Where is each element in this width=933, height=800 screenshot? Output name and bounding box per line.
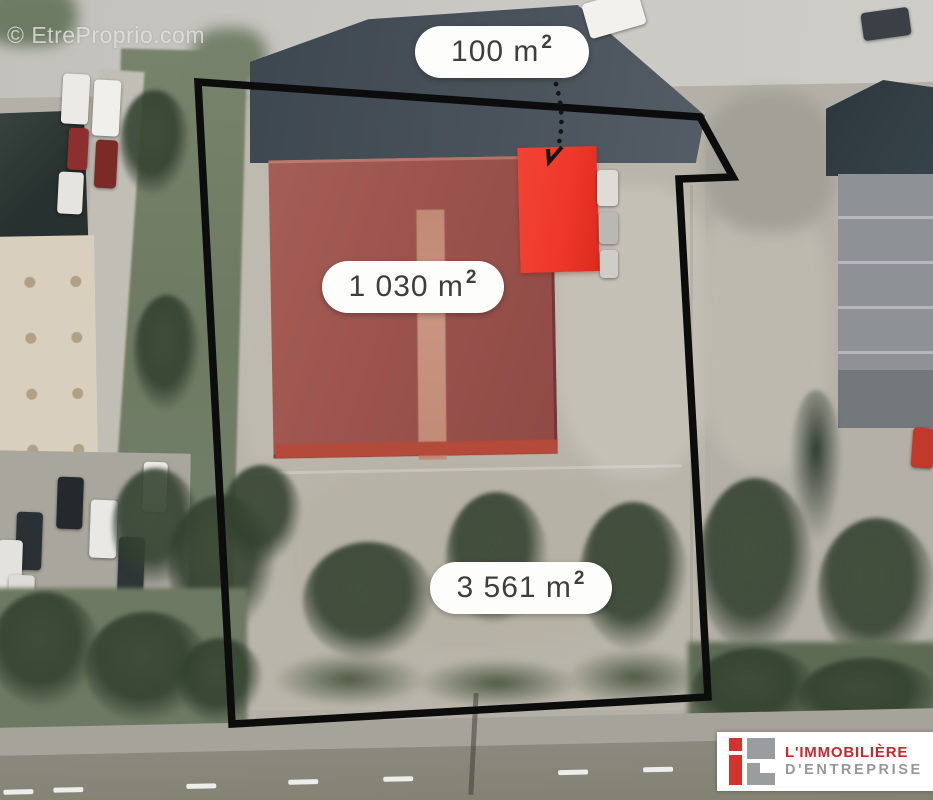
car xyxy=(67,128,89,171)
logo-i-dot xyxy=(729,738,742,751)
car xyxy=(600,250,618,278)
area-label-small-building: 100 m2 xyxy=(415,26,589,78)
aerial-photo: 100 m2 1 030 m2 3 561 m2 © EtreProprio.c… xyxy=(0,0,933,800)
area-value: 100 m xyxy=(451,35,539,69)
expansion-joint xyxy=(690,185,693,685)
squared-exponent: 2 xyxy=(574,568,586,590)
car xyxy=(61,73,91,124)
tree xyxy=(303,542,435,660)
roof-ridge-skylight xyxy=(416,210,446,460)
agency-name-line2: D'ENTREPRISE xyxy=(785,762,923,778)
watermark: © EtreProprio.com xyxy=(7,22,205,49)
car xyxy=(57,171,84,214)
car xyxy=(56,477,84,530)
agency-logo-text: L'IMMOBILIÈRE D'ENTREPRISE xyxy=(785,745,923,778)
lane-marking xyxy=(3,789,33,795)
car xyxy=(92,79,122,136)
right-building-dark-roof xyxy=(826,80,933,176)
logo-e-top-block xyxy=(747,738,775,759)
lane-marking xyxy=(558,769,588,775)
lane-marking xyxy=(383,776,413,782)
agency-name-line1: L'IMMOBILIÈRE xyxy=(785,745,923,762)
hedge xyxy=(272,652,427,707)
logo-e-notch xyxy=(760,763,775,773)
hedge xyxy=(565,648,705,706)
tree xyxy=(790,390,842,540)
agency-logo-icon xyxy=(729,738,775,785)
tree xyxy=(178,638,263,723)
highlighted-building-overlay xyxy=(517,146,599,273)
car xyxy=(597,170,618,206)
area-value: 1 030 m xyxy=(349,270,464,304)
lane-marking xyxy=(643,767,673,773)
hedge xyxy=(415,658,580,708)
logo-i-stem xyxy=(729,755,742,785)
area-value: 3 561 m xyxy=(457,571,572,605)
red-car xyxy=(911,427,933,468)
right-building-lower xyxy=(838,370,933,428)
area-label-land: 3 561 m2 xyxy=(430,562,612,614)
tree xyxy=(120,90,190,195)
tree xyxy=(134,295,200,410)
beige-apartment-building xyxy=(0,235,98,465)
squared-exponent: 2 xyxy=(541,32,553,54)
lane-marking xyxy=(53,787,83,793)
squared-exponent: 2 xyxy=(466,267,478,289)
tree xyxy=(222,465,302,565)
lane-marking xyxy=(288,779,318,785)
area-label-main-building: 1 030 m2 xyxy=(322,261,504,313)
right-building-facade xyxy=(838,174,933,372)
lane-marking xyxy=(186,783,216,789)
car xyxy=(94,139,118,188)
car xyxy=(599,212,618,244)
agency-logo: L'IMMOBILIÈRE D'ENTREPRISE xyxy=(717,732,933,791)
shadow-zone xyxy=(705,92,835,232)
